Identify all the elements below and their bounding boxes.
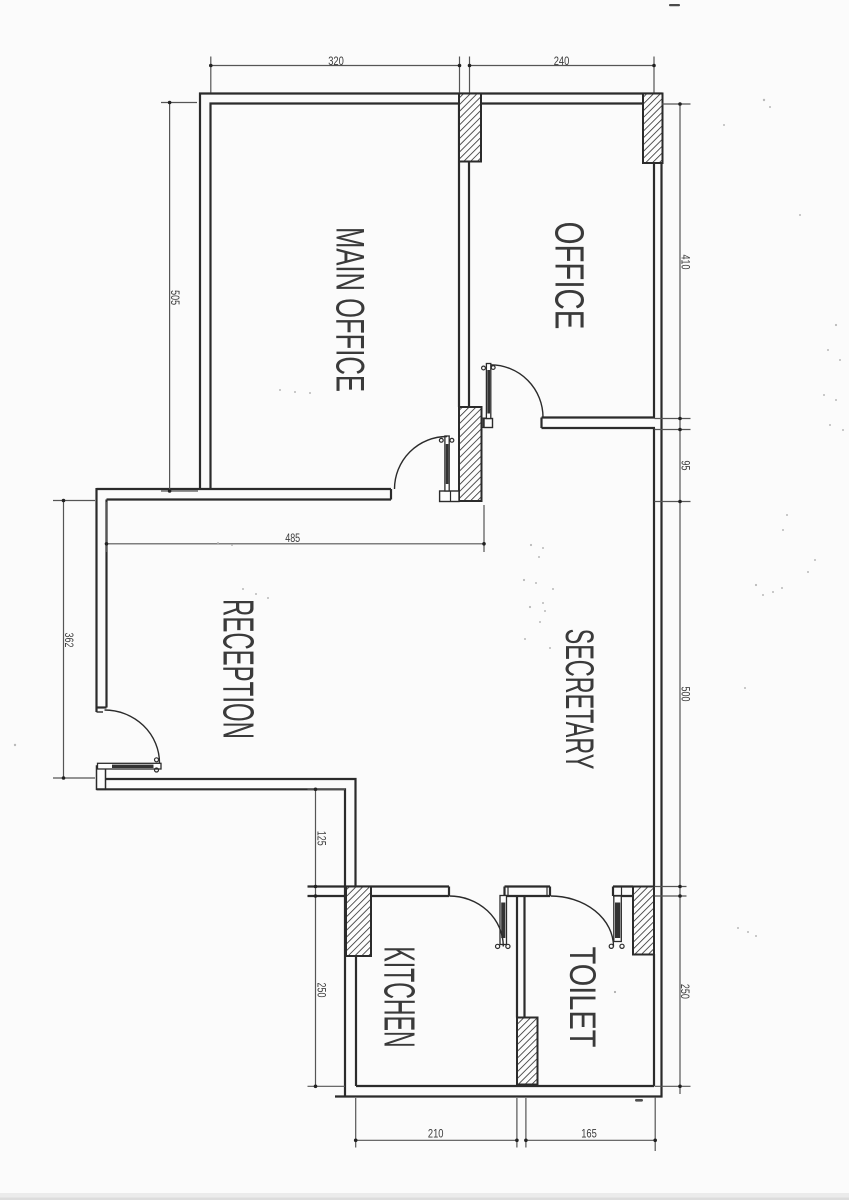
svg-text:505: 505	[168, 290, 180, 305]
svg-text:125: 125	[314, 831, 326, 846]
svg-text:TOILET: TOILET	[561, 947, 602, 1048]
svg-text:250: 250	[677, 984, 689, 999]
svg-text:362: 362	[62, 633, 74, 648]
svg-text:240: 240	[554, 55, 570, 68]
svg-text:500: 500	[678, 687, 690, 702]
svg-text:210: 210	[428, 1127, 444, 1140]
svg-text:MAIN OFFICE: MAIN OFFICE	[327, 227, 371, 392]
svg-text:SECRETARY: SECRETARY	[557, 629, 602, 770]
svg-text:165: 165	[581, 1127, 597, 1140]
svg-text:410: 410	[678, 255, 690, 270]
svg-text:95: 95	[678, 461, 690, 471]
svg-text:320: 320	[328, 55, 344, 68]
svg-text:KITCHEN: KITCHEN	[374, 946, 423, 1047]
svg-text:OFFICE: OFFICE	[546, 222, 592, 330]
svg-text:485: 485	[285, 533, 300, 545]
svg-text:RECEPTION: RECEPTION	[214, 599, 262, 739]
svg-text:250: 250	[314, 983, 326, 998]
